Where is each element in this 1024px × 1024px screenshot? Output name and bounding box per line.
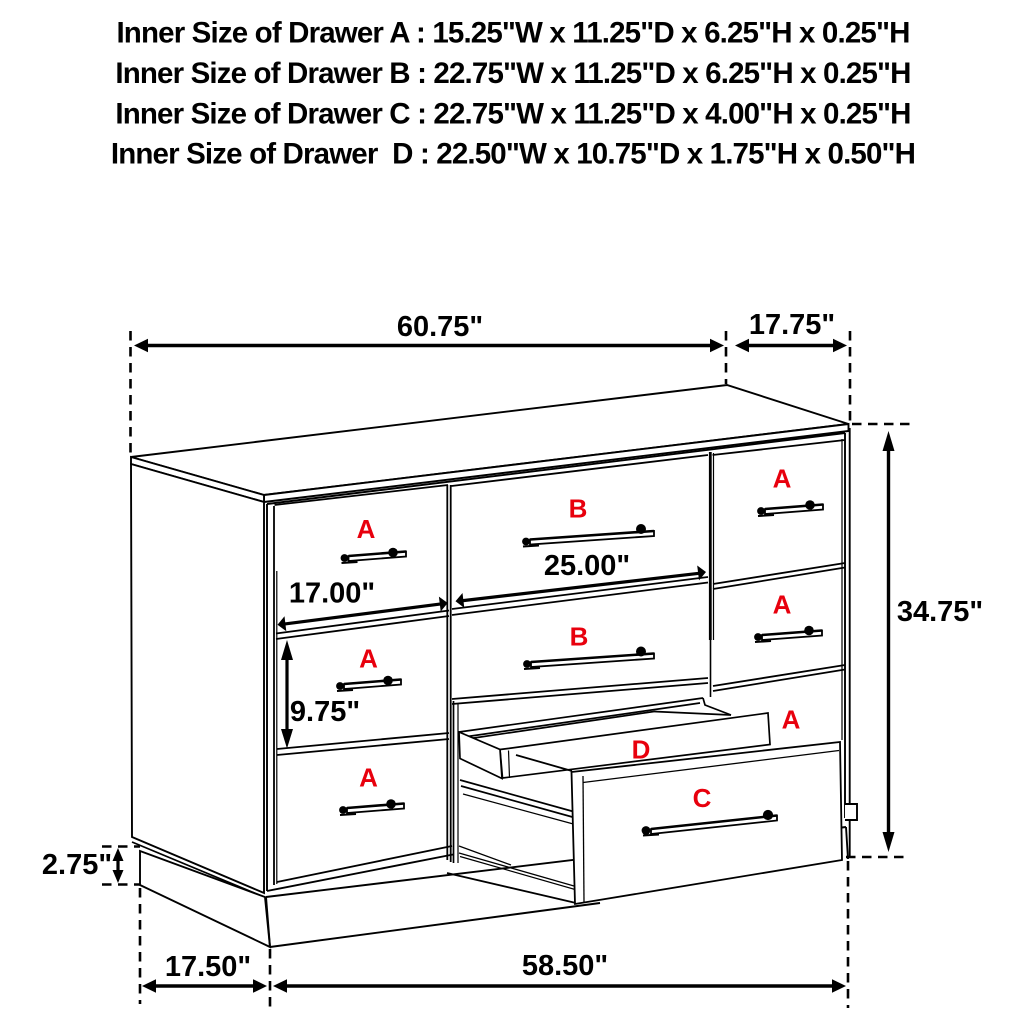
svg-text:C: C (693, 783, 712, 813)
svg-text:A: A (773, 590, 792, 620)
svg-text:34.75": 34.75" (897, 596, 983, 628)
svg-text:Inner Size of Drawer C : 22.75: Inner Size of Drawer C : 22.75"W x 11.25… (115, 98, 910, 131)
svg-text:A: A (773, 464, 792, 494)
svg-text:A: A (782, 705, 801, 735)
svg-text:9.75": 9.75" (290, 696, 360, 728)
svg-text:25.00": 25.00" (544, 550, 630, 582)
svg-text:2.75": 2.75" (42, 849, 112, 881)
svg-text:58.50": 58.50" (522, 950, 608, 982)
svg-text:60.75": 60.75" (397, 311, 483, 343)
svg-text:17.75": 17.75" (749, 309, 835, 341)
svg-text:D: D (632, 734, 651, 764)
svg-text:A: A (359, 644, 378, 674)
svg-text:B: B (570, 622, 589, 652)
svg-text:Inner Size of Drawer B : 22.75: Inner Size of Drawer B : 22.75"W x 11.25… (115, 57, 910, 90)
svg-text:B: B (569, 493, 588, 523)
svg-text:A: A (359, 763, 378, 793)
svg-text:Inner Size of Drawer D : 22.5: Inner Size of Drawer D : 22.50"W x 10.75… (111, 138, 915, 171)
svg-text:17.50": 17.50" (165, 951, 251, 983)
svg-text:A: A (357, 514, 376, 544)
svg-text:Inner Size of Drawer A : 15.25: Inner Size of Drawer A : 15.25"W x 11.25… (116, 17, 909, 50)
svg-text:17.00": 17.00" (289, 578, 375, 610)
